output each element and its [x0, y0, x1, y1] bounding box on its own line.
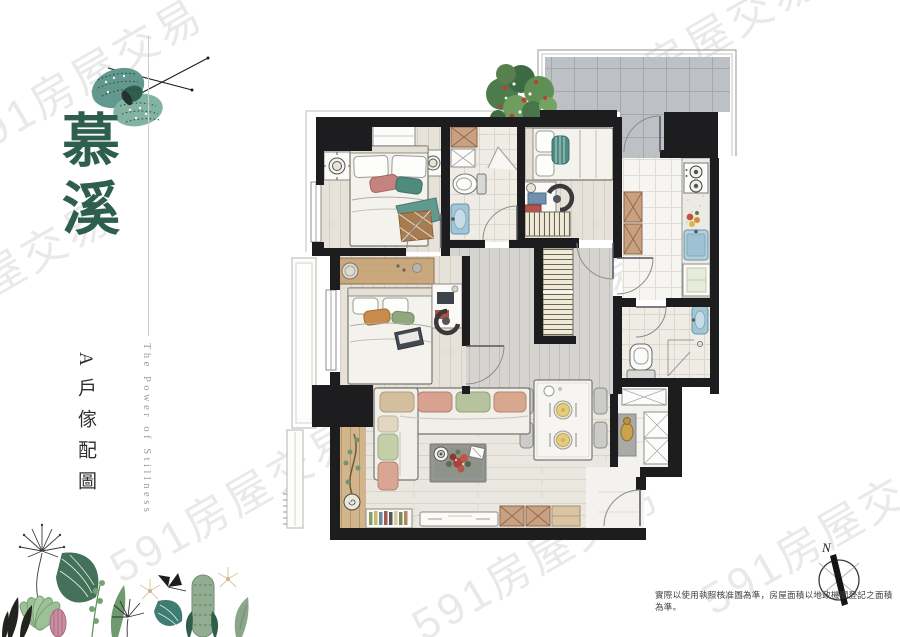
dining-table	[534, 380, 592, 460]
shoe-cabinets	[500, 506, 580, 526]
toilet	[453, 174, 486, 194]
pillow	[354, 155, 389, 177]
plaid-rug	[399, 210, 434, 241]
desk	[522, 182, 556, 214]
storage-x-horizontal	[622, 389, 666, 405]
pointed-leaf	[111, 585, 125, 637]
cushion	[378, 462, 398, 490]
cushion	[380, 392, 414, 412]
vertical-divider	[148, 36, 149, 336]
hatch-marks	[283, 494, 287, 524]
teal-cushion	[395, 176, 423, 194]
striped-cushion	[552, 136, 569, 164]
floor-plan	[283, 26, 745, 548]
single-bed	[525, 128, 613, 180]
stove	[684, 163, 708, 193]
stool	[342, 263, 358, 279]
pillow	[392, 155, 427, 177]
star-flower	[218, 567, 238, 587]
cushion	[378, 416, 398, 432]
pillow	[536, 155, 554, 176]
botanical-illustration	[0, 513, 250, 637]
entry-floor-lower	[586, 467, 644, 528]
double-bed	[348, 288, 432, 384]
pillow	[536, 131, 554, 152]
toilet	[627, 344, 655, 379]
cushion	[494, 392, 526, 412]
dandelion	[20, 525, 64, 599]
striped-leaf	[235, 597, 249, 637]
pink-bud	[50, 609, 66, 637]
storage-x-tall	[644, 412, 670, 464]
art-pedestal	[618, 414, 636, 456]
candle	[544, 386, 554, 396]
laptop	[528, 193, 546, 204]
laptop	[437, 292, 454, 304]
column-plant	[186, 575, 218, 637]
unit-layout-label: A戶傢配圖	[72, 352, 99, 502]
star-flower	[140, 579, 160, 599]
cushion	[456, 392, 490, 412]
washer-x	[451, 149, 475, 167]
double-bed	[350, 146, 440, 246]
terrace-notch-floor	[620, 112, 666, 158]
coffee-table-rug	[430, 444, 486, 482]
page: 591房屋交易 591房屋交易 591房屋交易 591房屋交易 591房屋交易 …	[0, 0, 900, 637]
desk-lamp	[527, 184, 536, 193]
disclaimer-text: 實際以使用執照核准圖為準，房屋面積以地政機關登記之面積為準。	[655, 589, 900, 613]
tv-console	[420, 512, 498, 526]
slatted-cabinet	[525, 212, 570, 236]
small-butterfly	[158, 573, 186, 591]
terrace-floor	[545, 57, 730, 112]
cushion	[378, 434, 398, 460]
bookshelf	[366, 509, 412, 528]
sink	[451, 204, 469, 234]
wood-deck-strip	[340, 427, 366, 528]
brand-tagline: The Power of Stillness	[141, 343, 152, 515]
project-title: 慕溪	[56, 110, 114, 246]
cabinet-x	[451, 127, 477, 147]
sink	[692, 306, 708, 334]
refrigerator	[683, 264, 710, 296]
teal-leaf	[154, 600, 182, 626]
big-leaf	[56, 553, 98, 603]
dresser	[332, 258, 434, 284]
book	[469, 446, 485, 460]
cushion	[418, 392, 452, 412]
table-lamp	[434, 447, 448, 461]
kitchen-sink	[684, 230, 708, 260]
